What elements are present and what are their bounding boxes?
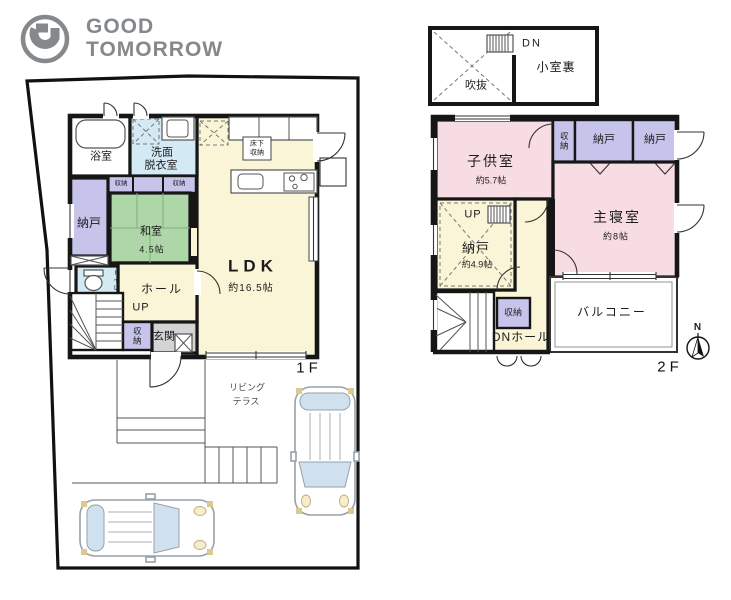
label-tatami-size: 4.5帖: [139, 246, 165, 255]
car-vertical: [291, 387, 359, 515]
label-closet-a: 収納: [115, 181, 128, 188]
floorplan-page: GOOD TOMORROW 浴室 洗面 脱衣室 収納 収納 納戸 和室 4.5帖…: [0, 0, 731, 600]
bathtub-icon: [76, 120, 125, 148]
label-void: 吹抜: [465, 81, 487, 92]
label-bath: 浴室: [90, 152, 112, 163]
label-washroom-1: 洗面: [151, 148, 173, 159]
compass-icon: [687, 333, 709, 359]
label-storage-a: 納戸: [593, 135, 615, 146]
label-storage-c-size: 約4.9帖: [462, 261, 493, 270]
label-dn-attic: DN: [522, 39, 542, 50]
label-up-1f: UP: [132, 303, 149, 314]
label-balcony: バルコニー: [577, 306, 647, 318]
label-storage-c: 納戸: [462, 242, 490, 255]
label-shoe-closet: 収納: [133, 327, 142, 346]
toilet-icon: [84, 270, 103, 291]
label-entrance: 玄関: [153, 332, 175, 343]
logo-icon: [14, 10, 76, 68]
kitchen-cabinets: [229, 117, 317, 140]
logo-line2: TOMORROW: [86, 39, 223, 62]
label-up-2f: UP: [464, 210, 481, 221]
label-tatami: 和室: [140, 227, 162, 238]
label-ldk-size: 約16.5帖: [228, 284, 273, 294]
label-master: 主寝室: [593, 210, 641, 224]
label-underfloor-2: 収納: [250, 150, 264, 157]
floor1-plan: [44, 103, 346, 387]
label-terrace-1: リビング: [229, 384, 265, 393]
label-kids-size: 約5.7帖: [476, 177, 507, 186]
attic-stairs-icon: [487, 35, 513, 52]
label-toilet: トイレ: [111, 269, 118, 292]
label-dn-hall: DNホール: [492, 331, 550, 343]
logo-text: GOOD TOMORROW: [86, 16, 223, 61]
label-underfloor-1: 床下: [250, 141, 264, 148]
label-kids: 子供室: [467, 154, 515, 168]
label-washroom-2: 脱衣室: [145, 161, 178, 172]
label-closet-2f-top: 収納: [560, 132, 569, 151]
label-hall-1f: ホール: [141, 283, 183, 295]
label-floor1: 1F: [296, 361, 322, 376]
label-master-size: 約8帖: [603, 233, 629, 242]
label-ldk: LDK: [228, 258, 278, 275]
label-closet-2f-hall: 収納: [504, 309, 522, 318]
up-stairs-icon-2f: [488, 206, 510, 223]
label-floor2: 2F: [657, 360, 683, 375]
kitchen-counter: [231, 170, 317, 193]
label-attic-room: 小室裏: [536, 61, 575, 73]
logo-line1: GOOD: [86, 16, 223, 39]
car-horizontal: [80, 494, 214, 562]
floorplan-drawing: [0, 0, 731, 600]
label-storage-1f: 納戸: [77, 217, 101, 229]
label-terrace-2: テラス: [233, 398, 260, 407]
label-closet-b: 収納: [173, 181, 186, 188]
label-compass-n: N: [694, 323, 702, 333]
logo: GOOD TOMORROW: [14, 10, 223, 68]
label-storage-b: 納戸: [644, 135, 666, 146]
